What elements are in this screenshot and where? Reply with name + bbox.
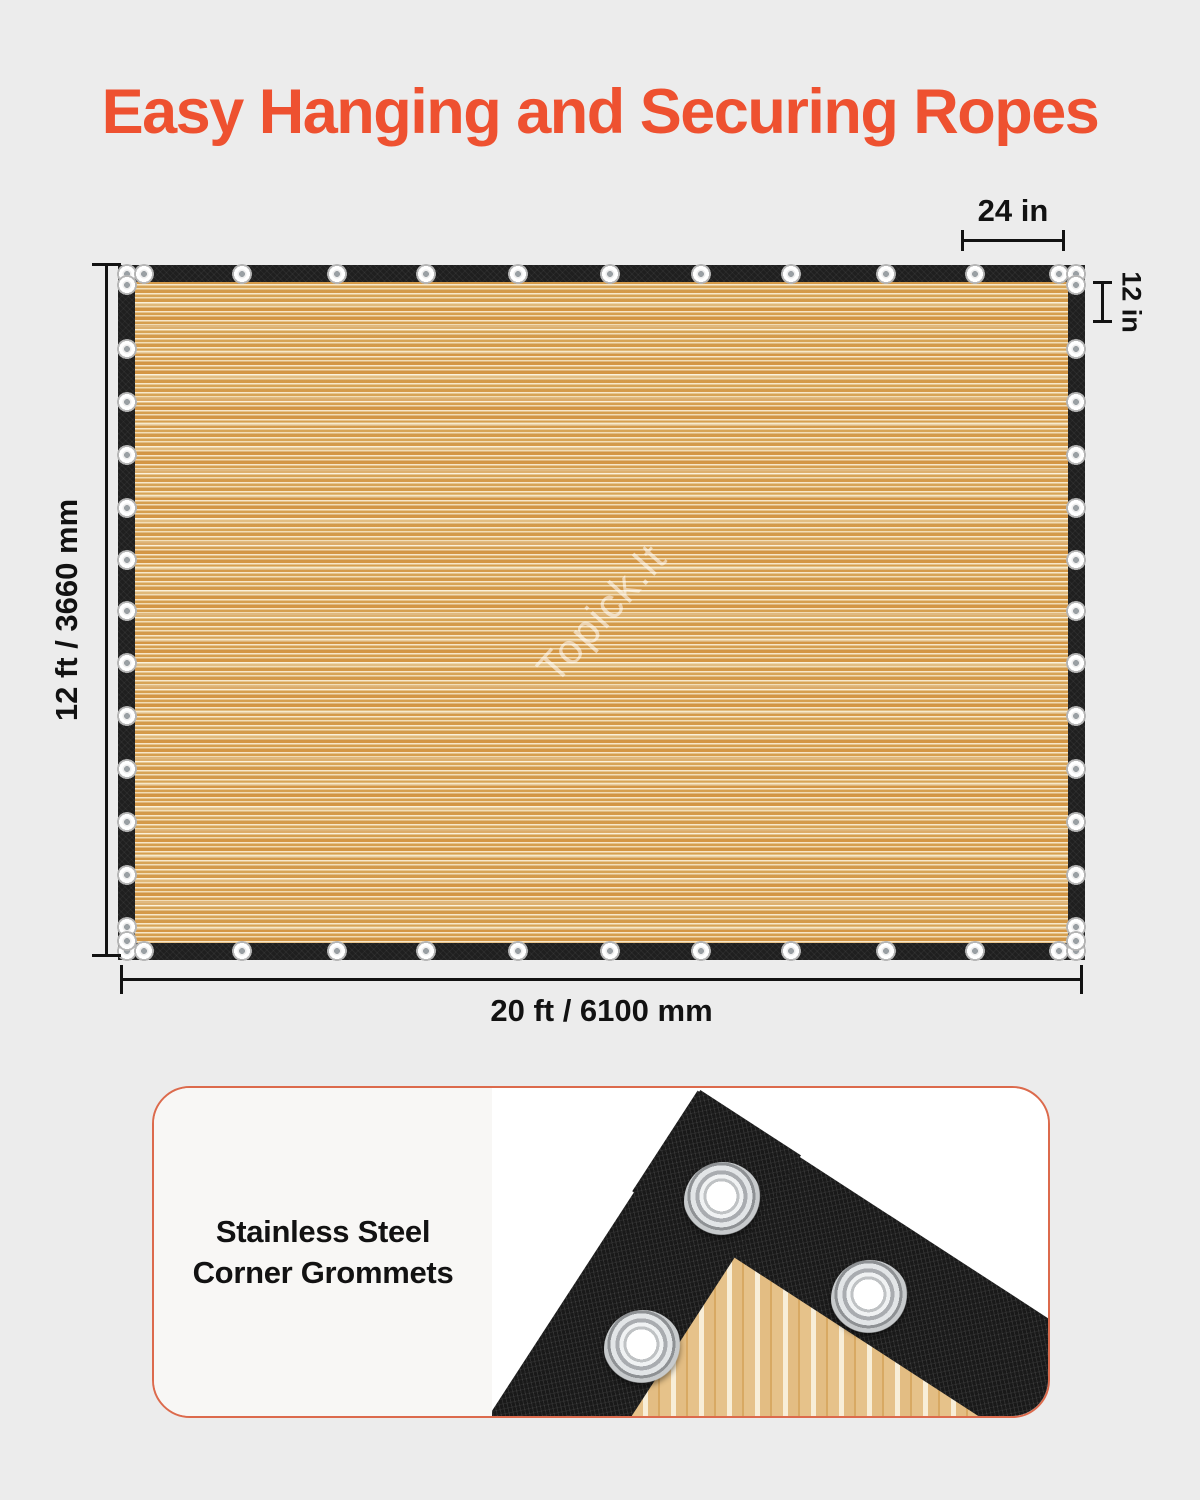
grommet <box>965 264 985 284</box>
grommet <box>1066 653 1086 673</box>
grommet <box>117 498 137 518</box>
page-background: Easy Hanging and Securing Ropes Topick.l… <box>0 0 1200 1500</box>
top-spacing-line <box>961 239 1065 242</box>
feature-caption-line2: Corner Grommets <box>193 1252 454 1293</box>
grommet <box>117 550 137 570</box>
grommet <box>117 931 137 951</box>
grommet <box>691 941 711 961</box>
top-spacing-label: 24 in <box>961 193 1065 229</box>
grommet <box>876 264 896 284</box>
grommet <box>691 264 711 284</box>
grommet <box>117 706 137 726</box>
grommet <box>965 941 985 961</box>
feature-caption-line1: Stainless Steel <box>216 1211 430 1252</box>
grommet <box>117 812 137 832</box>
grommet <box>232 264 252 284</box>
grommet <box>1066 550 1086 570</box>
grommet <box>1066 498 1086 518</box>
grommet <box>1066 339 1086 359</box>
side-spacing-dimension: 12 in <box>1093 281 1155 323</box>
grommet <box>327 941 347 961</box>
grommet <box>508 264 528 284</box>
grommet <box>117 392 137 412</box>
grommet <box>117 339 137 359</box>
grommet <box>117 445 137 465</box>
height-dimension-label: 12 ft / 3660 mm <box>49 499 85 721</box>
grommet <box>134 941 154 961</box>
grommet <box>1066 812 1086 832</box>
grommet <box>1066 706 1086 726</box>
grommet <box>1066 865 1086 885</box>
width-dimension-label: 20 ft / 6100 mm <box>120 993 1083 1029</box>
grommet <box>1066 445 1086 465</box>
grommet <box>600 264 620 284</box>
grommet <box>327 264 347 284</box>
side-spacing-line <box>1101 281 1104 323</box>
height-dimension-line <box>105 263 108 957</box>
width-dimension-line <box>120 978 1083 981</box>
top-spacing-dimension: 24 in <box>961 193 1065 245</box>
grommet <box>781 941 801 961</box>
height-dimension: 12 ft / 3660 mm <box>30 263 108 957</box>
shade-cloth: Topick.lt <box>118 265 1085 960</box>
grommet <box>117 865 137 885</box>
width-dimension: 20 ft / 6100 mm <box>120 963 1083 1039</box>
grommet-closeup-top <box>684 1162 762 1240</box>
grommet <box>508 941 528 961</box>
grommet <box>1066 759 1086 779</box>
grommet <box>117 653 137 673</box>
grommet <box>1066 601 1086 621</box>
grommet-closeup-left <box>604 1310 682 1388</box>
grommet <box>232 941 252 961</box>
grommet <box>117 759 137 779</box>
grommet <box>876 941 896 961</box>
grommet <box>416 941 436 961</box>
grommet <box>781 264 801 284</box>
grommet <box>416 264 436 284</box>
grommet <box>117 601 137 621</box>
grommet <box>134 264 154 284</box>
grommet-closeup-right <box>831 1260 909 1338</box>
grommet <box>600 941 620 961</box>
feature-card: Stainless Steel Corner Grommets <box>152 1086 1050 1418</box>
feature-caption: Stainless Steel Corner Grommets <box>154 1088 492 1416</box>
grommet <box>1066 392 1086 412</box>
side-spacing-label: 12 in <box>1116 271 1147 333</box>
corner-grommet-photo <box>492 1088 1050 1416</box>
grommet <box>1066 931 1086 951</box>
grommet <box>1066 275 1086 295</box>
page-title: Easy Hanging and Securing Ropes <box>0 76 1200 148</box>
grommet <box>117 275 137 295</box>
